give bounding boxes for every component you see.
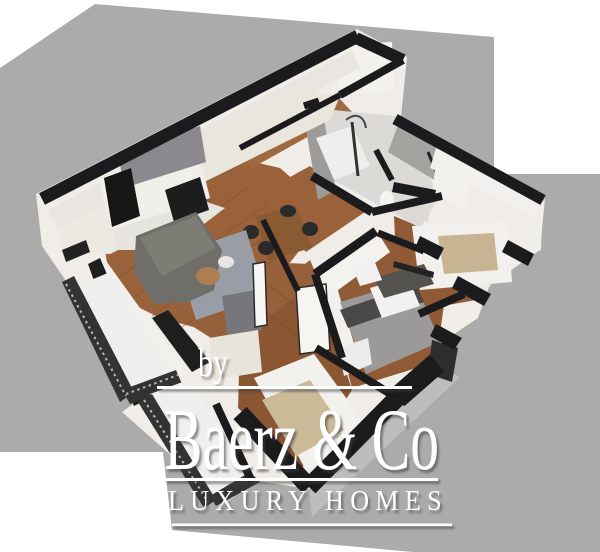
svg-text:LUXURY HOMES: LUXURY HOMES	[168, 485, 448, 517]
svg-text:by: by	[198, 340, 228, 385]
svg-text:Baerz & Co: Baerz & Co	[164, 392, 439, 489]
